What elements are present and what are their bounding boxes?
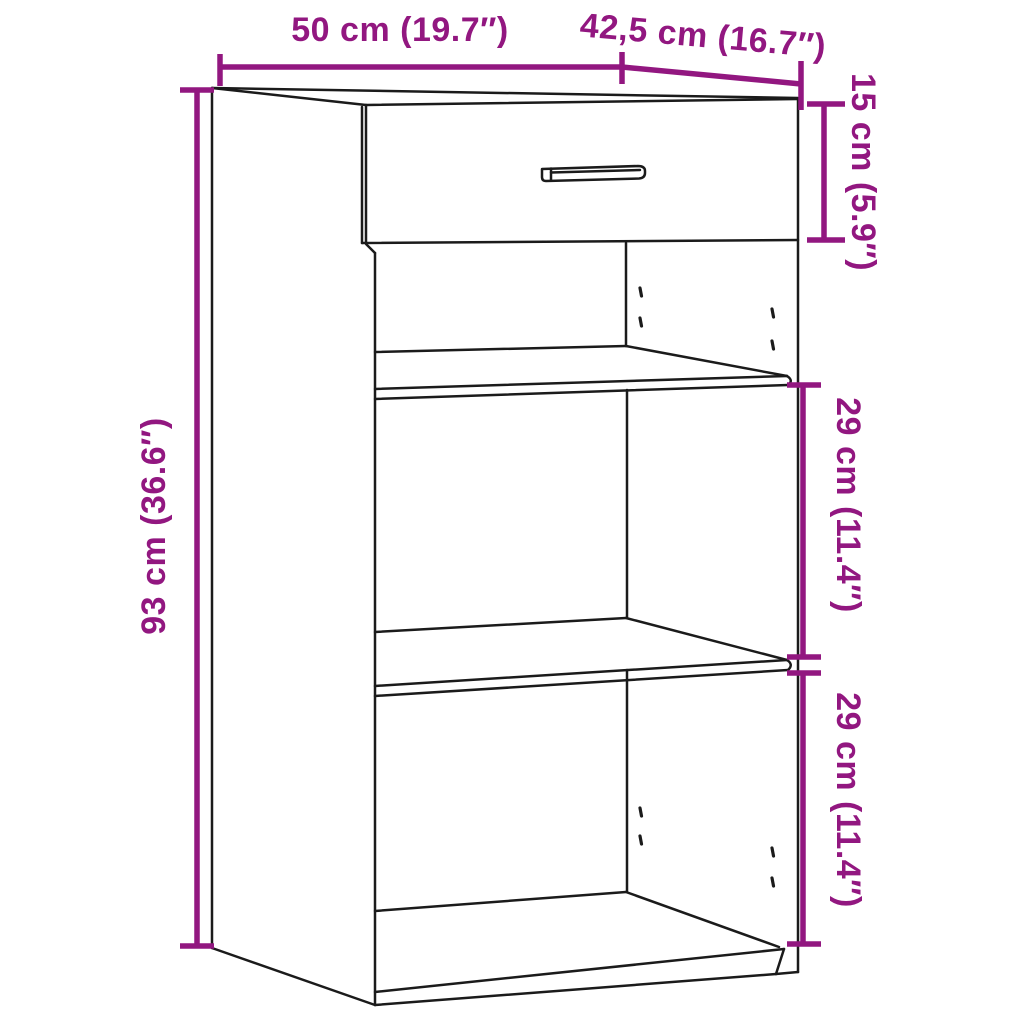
dimension-label-drawer-height: 15 cm (5.9″) <box>846 73 880 271</box>
cabinet-line-art <box>212 88 798 1005</box>
bottom-right-junction <box>626 892 779 947</box>
shelf-lower-right-tip <box>787 660 791 670</box>
dimension-label-middle-compartment: 29 cm (11.4″) <box>831 397 865 613</box>
pin-hole <box>640 318 642 326</box>
pin-hole <box>640 288 642 296</box>
drawer-front <box>362 105 798 243</box>
cabinet-interior <box>375 243 798 1005</box>
shelf-upper-right-junction <box>626 346 787 376</box>
dimension-bracket-drawer-height <box>807 104 845 240</box>
bottom-front-edge <box>375 949 784 992</box>
dimension-bracket-bottom-compartment <box>787 673 821 944</box>
dimension-lines <box>180 52 845 946</box>
right-panel-bottom-edge <box>776 972 798 974</box>
pin-hole <box>772 309 774 317</box>
bottom-back-junction <box>375 892 626 911</box>
drawer-handle <box>542 166 645 181</box>
pin-hole <box>640 808 642 816</box>
pin-hole <box>772 878 774 886</box>
bottom-band-lower-edge <box>375 974 776 1005</box>
shelf-upper-back-junction <box>375 346 626 352</box>
shelf-lower-back-junction <box>375 618 626 632</box>
pin-hole <box>772 341 774 349</box>
dimension-label-bottom-compartment: 29 cm (11.4″) <box>831 692 865 908</box>
pin-hole <box>640 836 642 844</box>
left-bottom-edge <box>212 948 375 1005</box>
shelf-lower-right-junction <box>626 618 787 660</box>
pin-hole <box>772 848 774 856</box>
shelf-upper <box>375 346 791 399</box>
bottom-band-right-end <box>776 949 784 974</box>
dimension-line-depth <box>622 61 801 110</box>
dimension-line-total-height <box>180 90 214 946</box>
cabinet-carcass-outline <box>212 88 798 1005</box>
top-front-edge <box>366 99 798 105</box>
front-left-step <box>366 244 375 253</box>
dimension-label-total-height: 93 cm (36.6″) <box>137 417 171 634</box>
depth-line <box>622 67 801 84</box>
dimension-bracket-middle-compartment <box>787 385 821 657</box>
shelf-lower <box>375 618 791 696</box>
drawer-handle-top-ridge <box>551 170 640 173</box>
dimension-diagram: 50 cm (19.7″) 42,5 cm (16.7″) 15 cm (5.9… <box>0 0 1024 1024</box>
dimension-label-width: 50 cm (19.7″) <box>291 13 508 47</box>
drawer-bottom-edge <box>362 240 798 243</box>
dimension-line-width <box>220 52 622 86</box>
